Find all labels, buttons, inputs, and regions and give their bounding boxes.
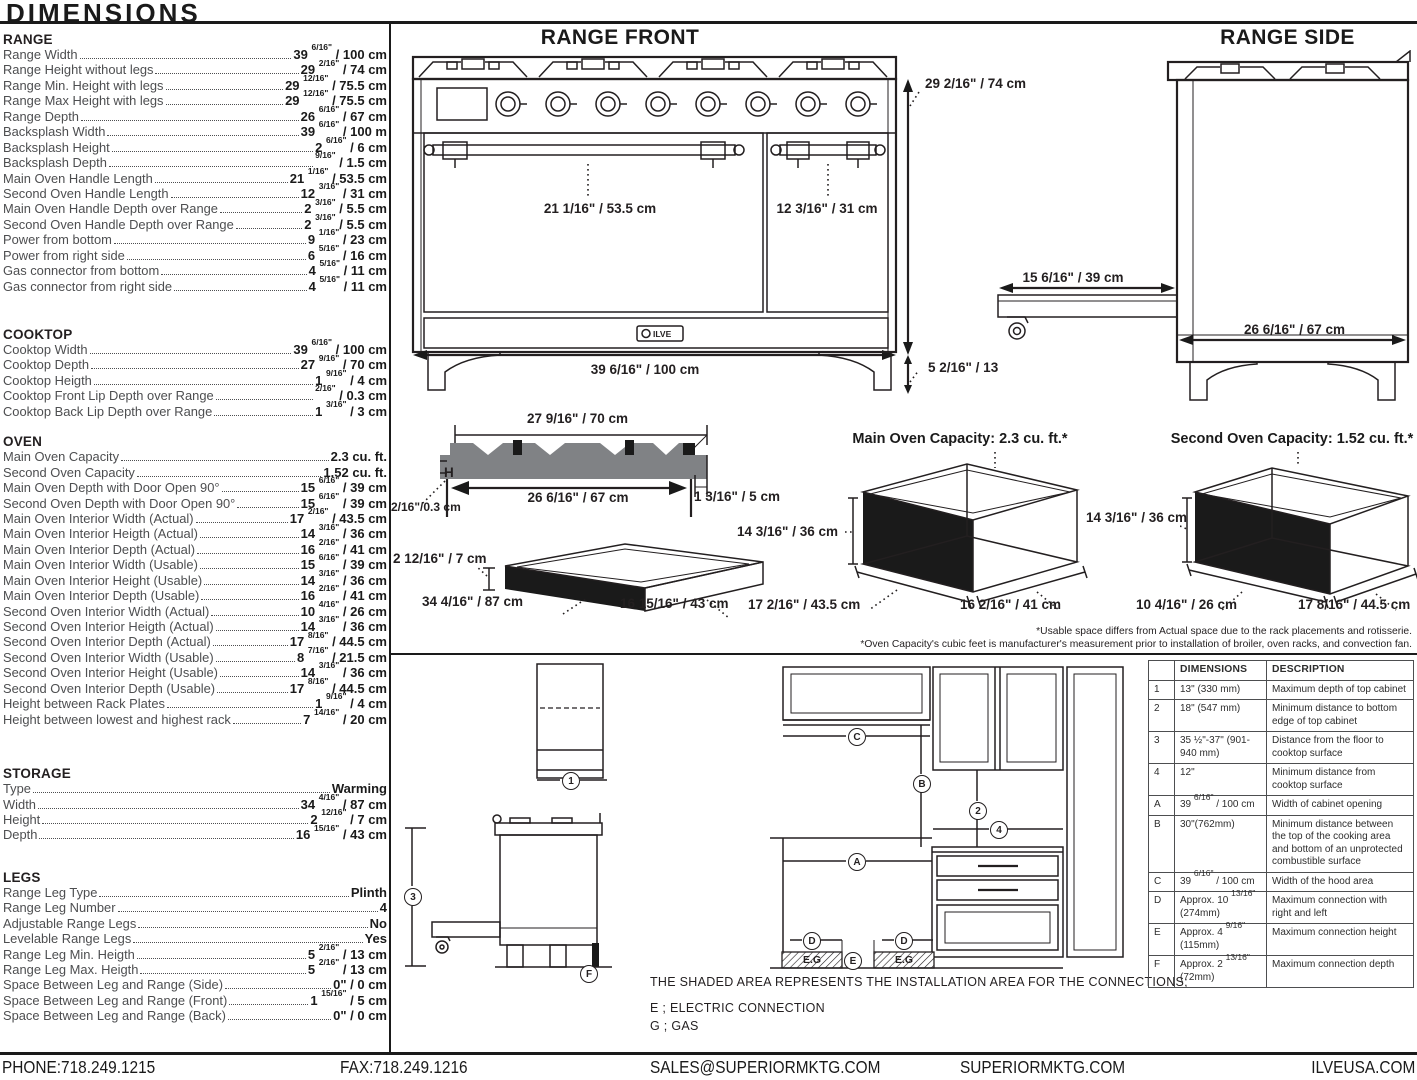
spec-label: Main Oven Handle Length	[3, 171, 153, 186]
row-description: Minimum distance between the top of the …	[1267, 815, 1414, 872]
cooktop-front-lip-dim: 2/16"/0.3 cm	[391, 500, 461, 514]
row-ref: A	[1149, 796, 1175, 816]
range-front-title: RANGE FRONT	[430, 26, 810, 50]
spec-label: Range Depth	[3, 109, 79, 124]
dotted-leader	[138, 927, 367, 928]
side-depth-dim: 26 6/16" / 67 cm	[1212, 322, 1377, 337]
spec-value: 4 5/16" / 11 cm	[309, 279, 387, 294]
title-underline	[0, 21, 1417, 24]
dotted-leader	[127, 259, 306, 260]
spec-label: Backsplash Depth	[3, 155, 107, 170]
section-heading: STORAGE	[3, 767, 387, 781]
dotted-leader	[213, 645, 288, 646]
spec-value: 4	[380, 900, 387, 915]
spec-value: 17 8/16" / 44.5 cm	[290, 634, 387, 649]
spec-label: Width	[3, 797, 36, 812]
dotted-leader	[81, 120, 299, 121]
row-description: Maximum connection with right and left	[1267, 892, 1414, 924]
front-second-handle-dim: 12 3/16" / 31 cm	[752, 201, 902, 216]
main-oven-door	[424, 133, 763, 312]
dotted-leader	[216, 399, 313, 400]
right-leg-icon	[819, 352, 891, 390]
dotted-leader	[118, 911, 378, 912]
table-row: 218" (547 mm)Minimum distance to bottom …	[1149, 700, 1414, 732]
spec-label: Second Oven Interior Height (Usable)	[3, 665, 218, 680]
svg-text:ILVE: ILVE	[653, 329, 672, 339]
row-description: Minimum distance from cooktop surface	[1267, 764, 1414, 796]
dotted-leader	[201, 599, 298, 600]
dotted-leader	[91, 368, 299, 369]
spec-label: Cooktop Depth	[3, 357, 89, 372]
dotted-leader	[121, 460, 329, 461]
spec-label: Space Between Leg and Range (Front)	[3, 993, 227, 1008]
spec-label: Main Oven Interior Width (Actual)	[3, 511, 194, 526]
table-row: EApprox. 4 9/16" (115mm)Maximum connecti…	[1149, 924, 1414, 956]
second-oven-door	[767, 133, 888, 312]
spec-value: 26 6/16" / 67 cm	[301, 109, 387, 124]
spec-label: Main Oven Interior Depth (Actual)	[3, 542, 195, 557]
cooktop-side	[495, 823, 602, 835]
spec-value: Yes	[365, 931, 387, 946]
section-heading: OVEN	[3, 435, 387, 449]
spec-label: Main Oven Interior Width (Usable)	[3, 557, 198, 572]
row-dimensions: 13" (330 mm)	[1175, 680, 1267, 700]
column-header	[1149, 661, 1175, 681]
row-ref: 1	[1149, 680, 1175, 700]
main-oven-width-dim: 17 2/16" / 43.5 cm	[748, 597, 860, 612]
marker-a: A	[848, 853, 866, 871]
spec-label: Cooktop Back Lip Depth over Range	[3, 404, 212, 419]
footer-fax: FAX:718.249.1216	[340, 1057, 468, 1078]
spec-label: Depth	[3, 827, 37, 842]
dotted-leader	[220, 212, 302, 213]
row-description: Width of cabinet opening	[1267, 796, 1414, 816]
spec-label: Backsplash Height	[3, 140, 110, 155]
open-drawer-side	[432, 922, 500, 937]
side-right-leg-icon	[1328, 362, 1395, 400]
footer-phone: PHONE:718.249.1215	[2, 1057, 155, 1078]
dotted-leader	[161, 274, 306, 275]
dotted-leader	[90, 353, 292, 354]
spec-label: Main Oven Interior Height (Usable)	[3, 573, 202, 588]
spec-label: Second Oven Interior Heigth (Actual)	[3, 619, 214, 634]
row-ref: C	[1149, 872, 1175, 892]
spec-label: Gas connector from bottom	[3, 263, 159, 278]
spec-sheet-page: DIMENSIONS RANGERange Width39 6/16" / 10…	[0, 0, 1417, 1080]
ilve-logo-badge: ILVE	[637, 326, 683, 341]
footer-site: SUPERIORMKTG.COM	[960, 1057, 1125, 1078]
dotted-leader	[200, 568, 299, 569]
spec-value: No	[370, 916, 387, 931]
footer-brand-site: ILVEUSA.COM	[1311, 1057, 1415, 1078]
dotted-leader	[94, 384, 313, 385]
spec-value: 14 3/16" / 36 cm	[301, 573, 387, 588]
dotted-leader	[114, 243, 306, 244]
column-header: DIMENSIONS	[1175, 661, 1267, 681]
control-display	[437, 88, 487, 120]
spec-row: Second Oven Depth with Door Open 90°15 6…	[3, 496, 387, 511]
footer-email: SALES@SUPERIORMKTG.COM	[650, 1057, 880, 1078]
spec-label: Second Oven Interior Depth (Usable)	[3, 681, 215, 696]
spec-label: Main Oven Depth with Door Open 90°	[3, 480, 220, 495]
main-oven-height-dim: 14 3/16" / 36 cm	[728, 524, 838, 539]
dotted-leader	[155, 182, 288, 183]
spec-label: Type	[3, 781, 31, 796]
spec-value: 16 2/16" / 41 cm	[301, 588, 387, 603]
marker-b: B	[913, 775, 931, 793]
row-dimensions: 18" (547 mm)	[1175, 700, 1267, 732]
spec-label: Height between lowest and highest rack	[3, 712, 231, 727]
marker-4: 4	[990, 821, 1008, 839]
dotted-leader	[109, 166, 313, 167]
spec-value: 0" / 0 cm	[333, 1008, 387, 1023]
side-grate-icon	[1185, 64, 1380, 79]
dotted-leader	[155, 73, 298, 74]
dotted-leader	[222, 491, 299, 492]
spec-label: Second Oven Interior Width (Usable)	[3, 650, 214, 665]
spec-value: 12 3/16" / 31 cm	[301, 186, 387, 201]
spec-label: Main Oven Capacity	[3, 449, 119, 464]
dotted-leader	[220, 676, 299, 677]
spec-value: 16 15/16" / 43 cm	[296, 827, 387, 842]
cooktop-back-lip-dim: 1 3/16" / 5 cm	[694, 489, 780, 504]
storage-drawer-drawing	[475, 540, 775, 632]
dotted-leader	[233, 723, 301, 724]
spec-label: Main Oven Handle Depth over Range	[3, 201, 218, 216]
spec-label: Cooktop Width	[3, 342, 88, 357]
spec-value: 29 12/16" / 75.5 cm	[285, 78, 387, 93]
spec-row: Depth16 15/16" / 43 cm	[3, 827, 387, 842]
cooktop-inner-dim: 26 6/16" / 67 cm	[498, 490, 658, 505]
row-ref: 3	[1149, 732, 1175, 764]
spec-label: Adjustable Range Legs	[3, 916, 136, 931]
side-left-leg-icon	[1190, 362, 1257, 400]
spec-section: COOKTOPCooktop Width39 6/16" / 100 cmCoo…	[3, 328, 387, 419]
row-ref: B	[1149, 815, 1175, 872]
range-side-title: RANGE SIDE	[1160, 26, 1415, 50]
dotted-leader	[38, 808, 299, 809]
front-width-dim: 39 6/16" / 100 cm	[550, 362, 740, 377]
spec-value: 1 15/16" / 5 cm	[310, 993, 387, 1008]
spec-label: Main Oven Interior Heigth (Actual)	[3, 526, 198, 541]
main-oven-handle-icon	[424, 142, 744, 168]
spec-row: Range Leg Max. Heigth5 2/16" / 13 cm	[3, 962, 387, 977]
dotted-leader	[216, 630, 299, 631]
spec-value: 7 14/16" / 20 cm	[303, 712, 387, 727]
spec-label: Power from right side	[3, 248, 125, 263]
shaded-area-label: E.G	[784, 954, 840, 966]
row-description: Maximum connection depth	[1267, 956, 1414, 988]
marker-d: D	[895, 932, 913, 950]
spec-row: Second Oven Interior Depth (Actual)17 8/…	[3, 634, 387, 649]
spec-row: Backsplash Depth9/16" / 1.5 cm	[3, 155, 387, 170]
dotted-leader	[196, 522, 288, 523]
second-oven-title: Second Oven Capacity: 1.52 cu. ft.*	[1168, 431, 1416, 447]
spec-label: Main Oven Interior Depth (Usable)	[3, 588, 199, 603]
spec-label: Range Width	[3, 47, 78, 62]
spec-row: Main Oven Capacity2.3 cu. ft.	[3, 449, 387, 464]
dotted-leader	[174, 290, 307, 291]
spec-row: Space Between Leg and Range (Front)1 15/…	[3, 993, 387, 1008]
spec-row: Range Min. Height with legs29 12/16" / 7…	[3, 78, 387, 93]
main-oven-depth-dim: 16 2/16" / 41 cm	[960, 597, 1061, 612]
dotted-leader	[39, 838, 294, 839]
dotted-leader	[33, 792, 330, 793]
spec-value: Plinth	[351, 885, 387, 900]
dotted-leader	[204, 584, 298, 585]
spec-label: Second Oven Interior Depth (Actual)	[3, 634, 211, 649]
main-oven-title: Main Oven Capacity: 2.3 cu. ft.*	[845, 431, 1075, 447]
install-table: DIMENSIONSDESCRIPTION 113" (330 mm)Maxim…	[1148, 660, 1414, 988]
dotted-leader	[137, 476, 322, 477]
table-row: 412"Minimum distance from cooktop surfac…	[1149, 764, 1414, 796]
spec-row: Range Leg TypePlinth	[3, 885, 387, 900]
dotted-leader	[166, 89, 284, 90]
cooktop-body-profile	[440, 455, 707, 479]
footnote-capacity: *Oven Capacity's cubic feet is manufactu…	[860, 639, 1412, 650]
row-description: Minimum distance to bottom edge of top c…	[1267, 700, 1414, 732]
marker-1: 1	[562, 772, 580, 790]
spec-section: STORAGETypeWarmingWidth34 4/16" / 87 cmH…	[3, 767, 387, 843]
spec-label: Range Leg Type	[3, 885, 97, 900]
second-oven-height-dim: 14 3/16" / 36 cm	[1086, 510, 1182, 525]
left-leg-icon	[428, 352, 500, 390]
install-note-electric: E ; ELECTRIC CONNECTION	[650, 1001, 825, 1015]
range-front-drawing: ILVE	[405, 50, 920, 395]
table-row: 335 ½"-37" (901-940 mm)Distance from the…	[1149, 732, 1414, 764]
dotted-leader	[216, 661, 295, 662]
connection-zone	[592, 943, 599, 967]
spec-row: Cooktop Back Lip Depth over Range1 3/16"…	[3, 404, 387, 419]
front-main-handle-dim: 21 1/16" / 53.5 cm	[505, 201, 695, 216]
spec-row: Second Oven Interior Height (Usable)14 3…	[3, 665, 387, 680]
vertical-divider	[389, 24, 391, 1052]
burner-grates-icon	[419, 59, 887, 77]
column-header: DESCRIPTION	[1267, 661, 1414, 681]
row-dimensions: 35 ½"-37" (901-940 mm)	[1175, 732, 1267, 764]
spec-row: Range Height without legs29 2/16" / 74 c…	[3, 62, 387, 77]
spec-label: Power from bottom	[3, 232, 112, 247]
table-row: DApprox. 10 13/16" (274mm)Maximum connec…	[1149, 892, 1414, 924]
drawer-height-dim: 2 12/16" / 7 cm	[393, 551, 473, 566]
spec-label: Space Between Leg and Range (Side)	[3, 977, 223, 992]
spec-section: LEGSRange Leg TypePlinthRange Leg Number…	[3, 871, 387, 1024]
row-description: Maximum connection height	[1267, 924, 1414, 956]
dotted-leader	[112, 151, 313, 152]
upper-left-cabinet	[783, 667, 930, 720]
table-row: A39 6/16" / 100 cmWidth of cabinet openi…	[1149, 796, 1414, 816]
spec-row: Height between lowest and highest rack7 …	[3, 712, 387, 727]
table-row: C39 6/16" / 100 cmWidth of the hood area	[1149, 872, 1414, 892]
spec-value: 39 6/16" / 100 cm	[293, 342, 387, 357]
spec-label: Levelable Range Legs	[3, 931, 131, 946]
spec-row: Adjustable Range LegsNo	[3, 916, 387, 931]
spec-label: Range Height without legs	[3, 62, 153, 77]
cooktop-h-label: H	[444, 465, 454, 480]
spec-label: Range Min. Height with legs	[3, 78, 164, 93]
shaded-area-label: E.G	[876, 954, 932, 966]
section-heading: LEGS	[3, 871, 387, 885]
spec-value: 5 2/16" / 13 cm	[308, 962, 387, 977]
tall-cabinet	[1067, 667, 1123, 957]
dotted-leader	[197, 553, 299, 554]
spec-label: Height	[3, 812, 40, 827]
row-ref: 2	[1149, 700, 1175, 732]
table-header-row: DIMENSIONSDESCRIPTION	[1149, 661, 1414, 681]
row-description: Width of the hood area	[1267, 872, 1414, 892]
dotted-leader	[228, 1019, 331, 1020]
dotted-leader	[42, 823, 308, 824]
row-ref: F	[1149, 956, 1175, 988]
spec-label: Gas connector from right side	[3, 279, 172, 294]
spec-label: Second Oven Capacity	[3, 465, 135, 480]
dotted-leader	[200, 537, 299, 538]
spec-value: 2.3 cu. ft.	[331, 449, 387, 464]
install-note: THE SHADED AREA REPRESENTS THE INSTALLAT…	[650, 975, 1188, 989]
marker-d: D	[803, 932, 821, 950]
dotted-leader	[229, 1004, 308, 1005]
spec-label: Range Leg Max. Heigth	[3, 962, 138, 977]
drawer-width-dim: 34 4/16" / 87 cm	[422, 594, 523, 609]
install-note-gas: G ; GAS	[650, 1019, 699, 1033]
second-oven-depth-dim: 17 8/16" / 44.5 cm	[1298, 597, 1410, 612]
spec-value: 2 3/16" / 5.5 cm	[304, 217, 387, 232]
spec-value: 10 4/16" / 26 cm	[301, 604, 387, 619]
row-dimensions: Approx. 10 13/16" (274mm)	[1175, 892, 1267, 924]
row-dimensions: 39 6/16" / 100 cm	[1175, 796, 1267, 816]
footer-rule	[0, 1052, 1417, 1055]
side-door-dim: 15 6/16" / 39 cm	[998, 270, 1148, 285]
spec-label: Range Leg Min. Heigth	[3, 947, 135, 962]
dotted-leader	[166, 104, 284, 105]
control-knobs-icon	[496, 92, 877, 116]
install-table-wrap: DIMENSIONSDESCRIPTION 113" (330 mm)Maxim…	[1148, 660, 1414, 988]
spec-section: RANGERange Width39 6/16" / 100 cmRange H…	[3, 33, 387, 294]
marker-f: F	[580, 965, 598, 983]
dotted-leader	[217, 692, 288, 693]
spec-value: 15 6/16" / 39 cm	[301, 480, 387, 495]
row-dimensions: Approx. 4 9/16" (115mm)	[1175, 924, 1267, 956]
spec-label: Second Oven Depth with Door Open 90°	[3, 496, 235, 511]
row-dimensions: Approx. 2 13/16" (72mm)	[1175, 956, 1267, 988]
front-leg-dim: 5 2/16" / 13	[928, 360, 998, 375]
marker-2: 2	[969, 802, 987, 820]
spec-value: 15 6/16" / 39 cm	[301, 557, 387, 572]
second-oven-width-dim: 10 4/16" / 26 cm	[1136, 597, 1237, 612]
drawer-depth-dim: 16 15/16" / 43 cm	[620, 596, 728, 611]
footnote-usable-space: *Usable space differs from Actual space …	[1036, 626, 1412, 637]
spec-label: Range Leg Number	[3, 900, 116, 915]
table-row: 113" (330 mm)Maximum depth of top cabine…	[1149, 680, 1414, 700]
spec-label: Space Between Leg and Range (Back)	[3, 1008, 226, 1023]
row-description: Distance from the floor to cooktop surfa…	[1267, 732, 1414, 764]
spec-section: OVENMain Oven Capacity2.3 cu. ft.Second …	[3, 435, 387, 727]
dotted-leader	[167, 707, 313, 708]
spec-row: Gas connector from right side4 5/16" / 1…	[3, 279, 387, 294]
spec-column: RANGERange Width39 6/16" / 100 cmRange H…	[3, 33, 387, 1024]
wall-cabinet	[537, 664, 603, 778]
dotted-leader	[107, 135, 298, 136]
spec-label: Second Oven Handle Length	[3, 186, 169, 201]
table-row: B30"(762mm)Minimum distance between the …	[1149, 815, 1414, 872]
row-dimensions: 12"	[1175, 764, 1267, 796]
spec-row: Range Leg Number4	[3, 900, 387, 915]
dotted-leader	[137, 958, 306, 959]
spec-row: Space Between Leg and Range (Back)0" / 0…	[3, 1008, 387, 1023]
cooktop-top-dim: 27 9/16" / 70 cm	[495, 411, 660, 426]
dotted-leader	[140, 973, 305, 974]
spec-label: Second Oven Handle Depth over Range	[3, 217, 234, 232]
page-title: DIMENSIONS	[6, 0, 201, 29]
base-cabinet	[932, 847, 1063, 957]
dotted-leader	[211, 615, 298, 616]
table-row: FApprox. 2 13/16" (72mm)Maximum connecti…	[1149, 956, 1414, 988]
spec-value: 39 6/16" / 100 cm	[293, 47, 387, 62]
dotted-leader	[99, 896, 349, 897]
install-side-diagram	[400, 658, 660, 990]
dotted-leader	[237, 507, 298, 508]
backsplash-icon	[1396, 51, 1410, 62]
dotted-leader	[225, 988, 331, 989]
row-dimensions: 30"(762mm)	[1175, 815, 1267, 872]
row-description: Maximum depth of top cabinet	[1267, 680, 1414, 700]
dotted-leader	[171, 197, 299, 198]
marker-e: E	[844, 952, 862, 970]
spec-row: Second Oven Interior Heigth (Actual)14 3…	[3, 619, 387, 634]
row-ref: 4	[1149, 764, 1175, 796]
marker-c: C	[848, 728, 866, 746]
dotted-leader	[236, 228, 303, 229]
dotted-leader	[214, 415, 313, 416]
spec-value: 1 3/16" / 3 cm	[315, 404, 387, 419]
spec-label: Height between Rack Plates	[3, 696, 165, 711]
row-ref: E	[1149, 924, 1175, 956]
spec-value: 16 2/16" / 41 cm	[301, 542, 387, 557]
install-front-diagram	[770, 655, 1150, 971]
open-drawer-icon	[998, 295, 1177, 339]
spec-label: Backsplash Width	[3, 124, 105, 139]
range-side-drawing	[995, 50, 1417, 405]
spec-label: Cooktop Front Lip Depth over Range	[3, 388, 214, 403]
spec-value: 8 7/16" / 21.5 cm	[297, 650, 387, 665]
marker-3: 3	[404, 888, 422, 906]
spec-label: Range Max Height with legs	[3, 93, 164, 108]
spec-value: 14 3/16" / 36 cm	[301, 526, 387, 541]
spec-label: Cooktop Heigth	[3, 373, 92, 388]
upper-right-cabinets	[933, 667, 1063, 770]
spec-value: Warming	[332, 781, 387, 796]
row-ref: D	[1149, 892, 1175, 924]
dotted-leader	[80, 58, 292, 59]
spec-label: Second Oven Interior Width (Actual)	[3, 604, 209, 619]
